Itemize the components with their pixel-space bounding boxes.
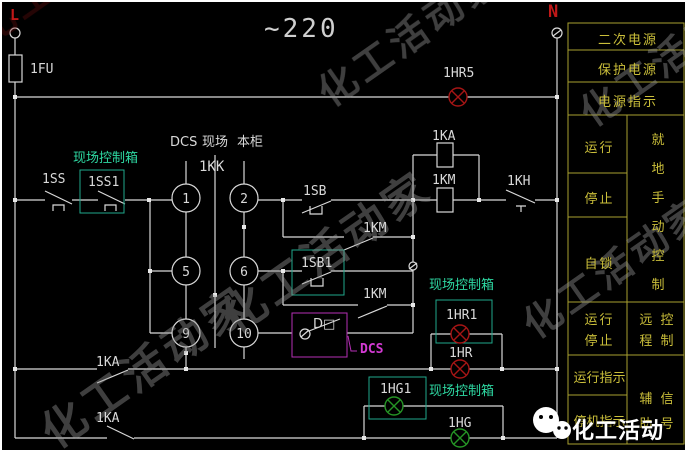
contact-number-2: 2 <box>240 192 248 207</box>
lamp-1HR1-icon <box>451 325 469 343</box>
table-secondary-power: 二次电源 <box>571 30 685 51</box>
thermal-1kh-label: 1KH <box>507 175 530 189</box>
dcs-text-label: DCS <box>360 343 383 357</box>
table-remote-control-line1: 远 控 <box>639 313 675 328</box>
table-run-stop-line2: 停止 <box>584 334 614 349</box>
stop-1ss-label: 1SS <box>42 173 65 187</box>
voltage-label: ~220 <box>264 22 339 36</box>
contact-number-1: 1 <box>182 192 190 207</box>
watermark-text-red: 化工活动家 <box>2 2 176 54</box>
table-remote-control-line2: 程 制 <box>639 334 675 349</box>
seal-in-1km-label: 1KM <box>363 222 386 236</box>
start-1sb1-label: 1SB1 <box>301 257 332 271</box>
dcs-contact-label: D□ <box>313 318 335 332</box>
coil-1km-label: 1KM <box>432 174 455 188</box>
terminal-N-slash <box>553 30 561 36</box>
table-remote-control: 远 控程 制 <box>630 310 685 352</box>
lamp-1HR5-icon <box>449 88 467 106</box>
selector-left-rail <box>150 200 172 333</box>
lamp-1hg1-label: 1HG1 <box>380 383 411 397</box>
selector-1kk-label: 1KK <box>199 160 224 174</box>
wechat-icon <box>533 407 571 439</box>
stop-1ss1-label: 1SS1 <box>88 176 119 190</box>
watermark-text: 化工活动家 <box>310 2 511 115</box>
position-panel-label: 本柜 <box>237 136 263 150</box>
table-protection-power: 保护电源 <box>571 60 685 81</box>
schematic-screenshot: 1 2 5 6 9 10 化工活动家 化工活动家 化工活动家 化工活动家 化工活… <box>0 0 689 456</box>
field-box-2-label: 现场控制箱 <box>429 279 494 293</box>
lamp-1hg-label: 1HG <box>448 417 471 431</box>
contact-1ka-label-1: 1KA <box>96 356 119 370</box>
table-run-stop: 运行停止 <box>571 310 628 352</box>
lamp-1HR-icon <box>451 360 469 378</box>
seal-in-1km2-label: 1KM <box>363 288 386 302</box>
field-box-1-label: 现场控制箱 <box>73 152 138 166</box>
table-stop: 停止 <box>571 189 628 210</box>
position-dcs-label: DCS <box>170 136 197 150</box>
lamp-1HG1-icon <box>385 397 403 415</box>
drawing-canvas: 1 2 5 6 9 10 化工活动家 化工活动家 化工活动家 化工活动家 化工活… <box>2 2 685 450</box>
contact-number-5: 5 <box>182 265 190 280</box>
phase-n-label: N <box>548 5 558 19</box>
fuse-symbol <box>9 55 22 82</box>
lamp-1hr5-label: 1HR5 <box>443 67 474 81</box>
relay-coil-symbol <box>437 143 453 167</box>
table-local-manual-control: 就地手动控制 <box>647 126 669 300</box>
table-aux-signal-line1: 辅 信 <box>639 392 675 407</box>
wechat-watermark-text: 化工活动家 <box>572 413 685 450</box>
phase-l-label: L <box>10 8 19 22</box>
lamp-1HG-icon <box>451 429 469 447</box>
table-self-lock: 自锁 <box>571 254 628 275</box>
lamp-1hr1-label: 1HR1 <box>446 309 477 323</box>
fuse-label: 1FU <box>30 63 53 77</box>
dcs-row <box>258 319 413 333</box>
lamp-1hr-label: 1HR <box>449 347 472 361</box>
position-field-label: 现场 <box>202 136 228 150</box>
start-1sb-label: 1SB <box>303 185 326 199</box>
field-box-3-label: 现场控制箱 <box>429 385 494 399</box>
contact-1ka-label-2: 1KA <box>96 412 119 426</box>
coil-1ka-label: 1KA <box>432 130 455 144</box>
table-power-indication: 电源指示 <box>571 92 685 113</box>
stop-lamp-branch <box>364 406 503 438</box>
table-run-indication: 运行指示 <box>571 368 628 389</box>
dcs-leader <box>348 336 357 351</box>
table-run-stop-line1: 运行 <box>584 313 614 328</box>
table-run: 运行 <box>571 138 628 159</box>
